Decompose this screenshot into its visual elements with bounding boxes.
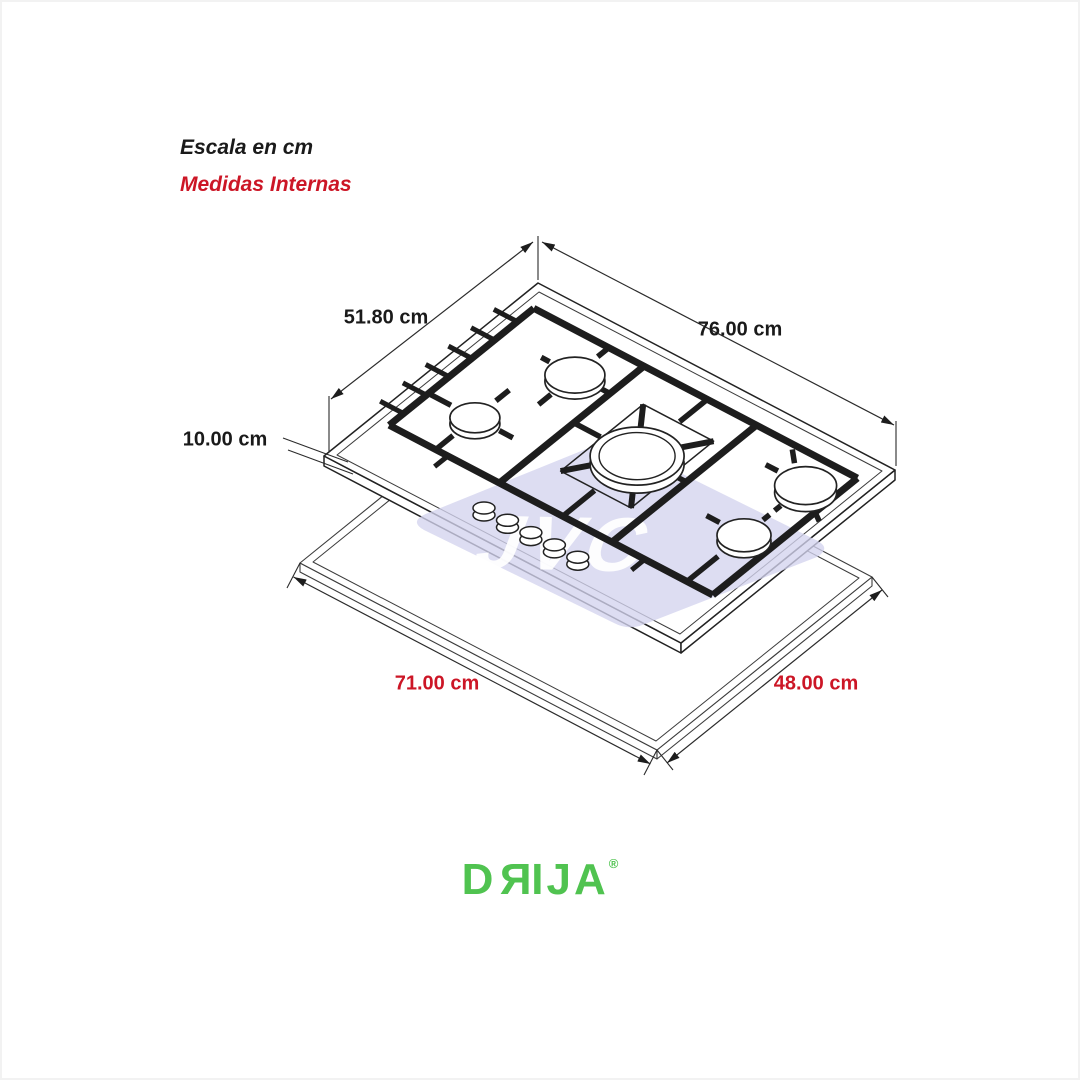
dim-top-depth: 51.80 cm	[344, 307, 429, 330]
logo-letter: D	[462, 855, 497, 905]
registered-mark: ®	[609, 856, 619, 871]
brand-logo: D R I J A ®	[462, 855, 619, 905]
dim-cutout-width: 71.00 cm	[395, 673, 480, 696]
dim-body-height: 10.00 cm	[183, 429, 268, 452]
logo-letter-mirrored-r: R	[496, 855, 531, 905]
page: JVC Escala en cm Medidas Internas 51.80 …	[0, 0, 1080, 1080]
cooktop-diagram: JVC	[0, 0, 1080, 1080]
dim-top-width: 76.00 cm	[698, 319, 783, 342]
dim-cutout-depth: 48.00 cm	[774, 673, 859, 696]
internal-measures-title: Medidas Internas	[180, 167, 352, 204]
logo-letter: I	[531, 855, 546, 905]
logo-letter: J	[546, 855, 573, 905]
header-block: Escala en cm Medidas Internas	[180, 130, 352, 204]
logo-letter: A	[574, 855, 609, 905]
scale-title: Escala en cm	[180, 130, 352, 167]
